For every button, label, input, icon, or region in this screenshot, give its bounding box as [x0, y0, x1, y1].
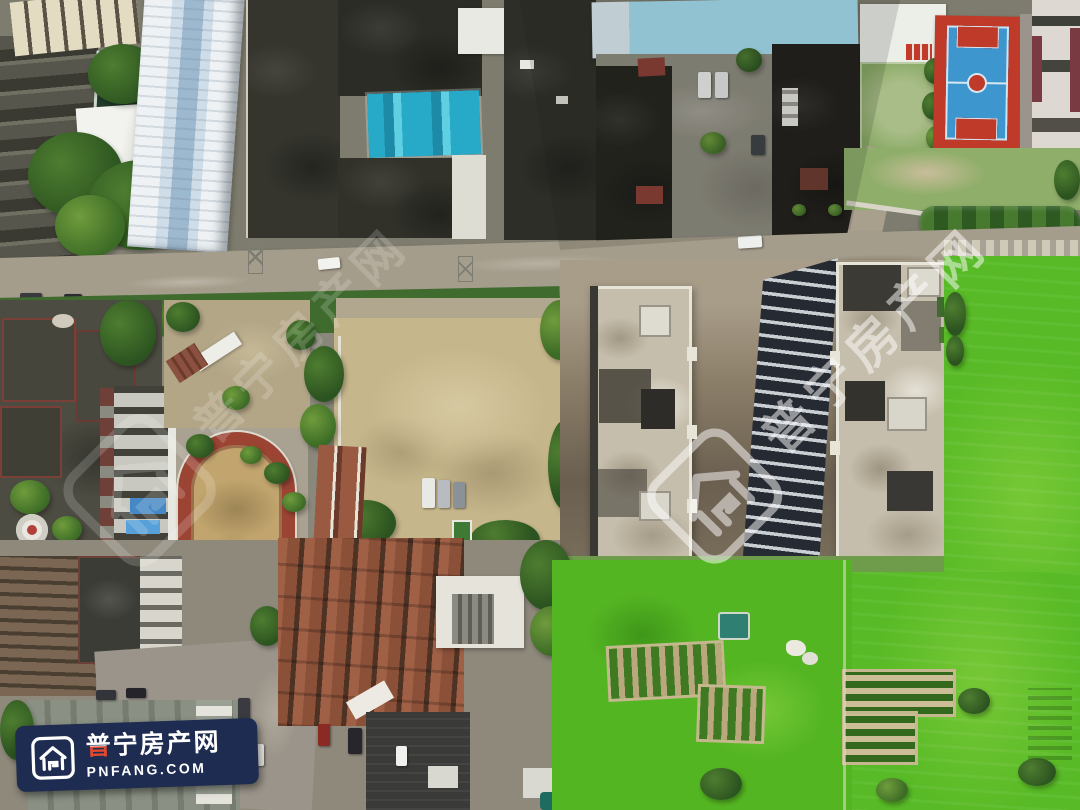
tree-canopy: [1054, 160, 1080, 200]
tree-canopy: [10, 480, 50, 514]
rooftop-ac-units: [782, 88, 798, 126]
construction-tower-left: [590, 286, 692, 566]
white-car: [698, 72, 711, 98]
rooftop-shed: [556, 96, 568, 104]
black-car: [348, 728, 362, 754]
court-key-bottom: [955, 118, 997, 141]
grey-truck: [438, 480, 450, 508]
path-beside-court: [1020, 14, 1032, 148]
red-shed: [636, 186, 663, 204]
stair-core: [907, 267, 941, 297]
tree-canopy: [286, 320, 316, 350]
garden-plot-rows: [845, 672, 953, 714]
roof-band: [1032, 16, 1080, 26]
dark-building-west: [596, 66, 672, 244]
shrub: [792, 204, 806, 216]
stair-core: [887, 397, 927, 431]
red-car: [318, 724, 330, 746]
white-car: [738, 235, 763, 249]
aerial-photo-scene: 普宁房产网 普宁房产网 普宁房产网 PNFANG.COM: [0, 0, 1080, 810]
tree-canopy: [1018, 758, 1056, 786]
tree-canopy: [944, 292, 966, 336]
tree-canopy: [264, 462, 290, 484]
school-blue-panel: [130, 498, 166, 514]
utility-pole: [458, 256, 473, 282]
tree-canopy: [100, 300, 156, 366]
tree-canopy: [304, 346, 344, 402]
white-rooftop-strip: [452, 155, 486, 239]
balcony-notch: [830, 351, 840, 365]
faint-garden-rows: [1028, 688, 1072, 760]
brand-banner: 普宁房产网 PNFANG.COM: [15, 718, 259, 792]
tree-canopy: [876, 778, 908, 802]
dark-car: [238, 698, 250, 720]
parapet-roof: [0, 406, 62, 478]
planter-center: [27, 525, 37, 535]
roof-dark-patch: [901, 301, 941, 351]
utility-pole: [248, 240, 263, 274]
white-roof-patch: [428, 766, 458, 788]
house-logo-icon: [29, 734, 77, 782]
tree-canopy: [700, 768, 742, 800]
tree-canopy: [300, 404, 336, 448]
facade-edge: [590, 286, 598, 566]
white-rooftop-structure: [458, 8, 506, 54]
tree-canopy: [946, 336, 964, 366]
white-truck: [422, 478, 435, 508]
dark-car: [126, 688, 146, 698]
shrub: [700, 132, 726, 154]
garden-pool: [718, 612, 750, 640]
white-roof-building: [860, 4, 946, 62]
tree-canopy: [222, 386, 250, 410]
tree-canopy: [166, 302, 200, 332]
rust-tile-house: [313, 445, 366, 547]
roof-core: [641, 389, 675, 429]
construction-house: [366, 712, 470, 810]
balcony-notch: [687, 499, 697, 513]
tree-canopy: [55, 195, 125, 257]
rooftop-patch: [800, 168, 828, 190]
construction-tower-right: [836, 262, 952, 568]
tree-canopy: [958, 688, 990, 714]
garden-plot-rows: [845, 714, 915, 762]
court-center-circle: [969, 75, 985, 91]
white-tarp-patch: [802, 652, 818, 665]
dark-car: [96, 690, 116, 700]
white-car: [317, 257, 340, 270]
grass-strip: [844, 148, 1080, 210]
roof-dark-patch: [845, 381, 885, 421]
dark-van: [751, 135, 765, 155]
tree-canopy: [736, 48, 762, 72]
tree-canopy: [240, 446, 262, 464]
tree-canopy: [186, 434, 214, 458]
right-edge-building: [1032, 0, 1080, 170]
stair-core: [639, 491, 671, 521]
garden-plot-rows: [699, 687, 763, 741]
school-blue-panel: [126, 520, 160, 534]
parapet-roof: [2, 318, 76, 402]
roof-dark-patch: [843, 265, 901, 311]
balcony-notch: [830, 441, 840, 455]
brand-name-first-char: 普: [85, 732, 113, 761]
grey-truck: [453, 482, 465, 508]
brand-text-block: 普宁房产网 PNFANG.COM: [85, 729, 222, 779]
red-shed: [638, 57, 666, 76]
white-car: [715, 72, 728, 98]
dark-factory-roof: [246, 0, 340, 238]
roof-dark-patch: [887, 471, 933, 511]
brand-url: PNFANG.COM: [86, 759, 222, 780]
shrub: [52, 516, 82, 542]
tree-canopy: [282, 492, 306, 512]
dark-factory-roof: [504, 0, 596, 240]
blue-tarp-roof: [367, 90, 481, 158]
white-car: [396, 746, 407, 766]
brand-name-rest: 宁房产网: [112, 728, 221, 760]
stone-row: [944, 240, 1080, 256]
roof-band: [1032, 118, 1080, 132]
balcony-notch: [687, 347, 697, 361]
maroon-accent: [1032, 36, 1042, 102]
basketball-court: [933, 15, 1021, 150]
basketball-court-surface: [945, 25, 1009, 140]
warehouse-white-blue-roof: [127, 0, 245, 253]
court-key-top: [957, 26, 999, 49]
dark-building-east: [772, 44, 860, 246]
stair-core: [639, 305, 671, 337]
brand-name: 普宁房产网: [85, 729, 221, 761]
red-truck: [906, 44, 932, 60]
shrub: [828, 204, 842, 216]
field-path-line: [843, 560, 846, 810]
rooftop-shed: [520, 60, 534, 69]
maroon-accent: [1070, 28, 1080, 112]
debris-pile: [52, 314, 74, 328]
grey-gable-roof: [452, 594, 494, 644]
white-tall-building: [140, 556, 182, 656]
balcony-notch: [687, 425, 697, 439]
